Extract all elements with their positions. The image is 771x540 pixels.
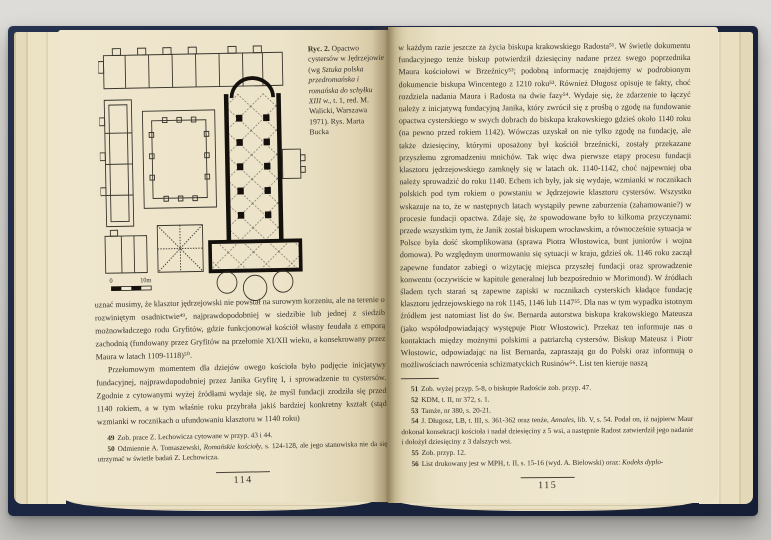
- figure-caption-label: Ryc. 2.: [308, 44, 330, 53]
- photo-background: 0 10m Ryc. 2. Opactwo cystersów w Jędrze…: [0, 0, 771, 540]
- page-number-rule: [216, 471, 270, 473]
- page-number-rule: [521, 477, 575, 478]
- right-page-text-block: w każdym razie jeszcze za życia biskupa …: [398, 40, 694, 493]
- footnotes-left: 49Zob. prace Z. Lechowicza cytowane w pr…: [97, 428, 388, 465]
- footnote-italic: Annales: [551, 416, 574, 424]
- scale-zero-label: 0: [109, 278, 113, 285]
- footnote: 56List drukowany jest w MPH, t. II, s. 1…: [402, 457, 694, 470]
- footnote-italic: Romańskie kościoły: [204, 442, 262, 451]
- footnote-number: 49: [107, 434, 114, 442]
- open-book: 0 10m Ryc. 2. Opactwo cystersów w Jędrze…: [0, 0, 771, 540]
- scale-ten-label: 10m: [140, 277, 151, 284]
- footnotes-right: 51Zob. wyżej przyp. 5-8, o biskupie Rado…: [401, 382, 694, 469]
- footnote-number: 54: [411, 417, 418, 425]
- left-page-text-block: uznać musimy, że klasztor jędrzejowski n…: [95, 293, 388, 488]
- footnote-text: Zob. przyp. 12.: [422, 449, 466, 457]
- footnote-italic: Kodeks dyplo-: [622, 458, 663, 466]
- footnote-number: 52: [411, 396, 418, 404]
- footnote-text: KDM, t. II, nr 372, s. 1.: [421, 396, 489, 405]
- left-page-content: 0 10m Ryc. 2. Opactwo cystersów w Jędrze…: [58, 30, 388, 502]
- body-text: w każdym razie jeszcze za życia biskupa …: [398, 40, 693, 372]
- floor-plan-figure: 0 10m: [98, 32, 309, 308]
- footnote: 54J. Długosz, LB, t. III, s. 361-362 ora…: [401, 414, 693, 448]
- footnote-separator-rule: [401, 378, 439, 379]
- right-page: w każdym razie jeszcze za życia biskupa …: [388, 27, 718, 503]
- figure-caption: Ryc. 2. Opactwo cystersów w Jędrzejowie …: [308, 43, 386, 138]
- footnote-text: List drukowany jest w MPH, t. II, s. 15-…: [422, 458, 622, 468]
- page-number-block: 115: [402, 476, 694, 492]
- page-number-left: 114: [98, 472, 388, 489]
- church-plan: [207, 77, 301, 271]
- footnote-number: 50: [107, 445, 114, 453]
- footnote-text: Zob. wyżej przyp. 5-8, o biskupie Radośc…: [421, 384, 591, 393]
- footnote-number: 55: [411, 449, 418, 457]
- footnote-text: Odmiennie A. Tomaszewski,: [118, 443, 204, 453]
- footnote-text: Tamże, nr 380, s. 20-21.: [421, 406, 491, 415]
- right-page-content: w każdym razie jeszcze za życia biskupa …: [388, 27, 718, 503]
- footnote-text: J. Długosz, LB, t. III, s. 361-362 oraz …: [421, 416, 550, 425]
- scale-bar: 0 10m: [109, 277, 151, 291]
- footnote-text: Zob. prace Z. Lechowicza cytowane w przy…: [117, 431, 272, 442]
- body-paragraph: uznać musimy, że klasztor jędrzejowski n…: [95, 293, 386, 364]
- footnote-number: 51: [411, 386, 418, 394]
- page-number-right: 115: [402, 479, 694, 492]
- left-page: 0 10m Ryc. 2. Opactwo cystersów w Jędrze…: [58, 30, 388, 502]
- body-paragraph: Przełomowym momentem dla dziejów owego k…: [96, 358, 387, 429]
- footnote-number: 56: [412, 460, 419, 468]
- footnote-number: 53: [411, 407, 418, 415]
- page-number-block: 114: [98, 469, 388, 489]
